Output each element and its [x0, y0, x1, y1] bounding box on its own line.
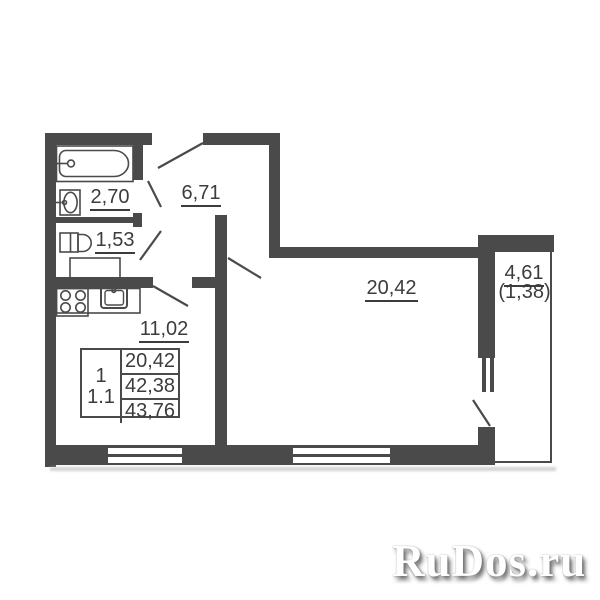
- rudos-watermark: RuDos.ru: [392, 537, 584, 589]
- bathtub-icon: [57, 146, 134, 182]
- toilet-area-label: 1,53: [85, 229, 145, 251]
- apartment-info-table: 1 1.1 20,42 42,38 43,76: [80, 348, 180, 418]
- balcony-reduced-area-label: (1,38): [492, 281, 557, 303]
- flat-type-value: 1: [95, 366, 106, 387]
- entrance-door-swing: [158, 143, 203, 168]
- floor-plan: 2,70 1,53 6,71 11,02 20,42 4,61 (1,38) 1…: [0, 0, 600, 600]
- kitchen-area-label: 11,02: [134, 318, 194, 340]
- bathroom-sink-icon: [56, 190, 80, 215]
- washing-machine-icon: [70, 258, 120, 280]
- flat-unit-value: 1.1: [87, 387, 115, 408]
- kitchen-door-swing: [153, 286, 188, 306]
- kitchen-sink-icon: [101, 284, 127, 309]
- balcony-door-swing: [473, 400, 490, 426]
- bathroom-door-swing: [148, 181, 161, 207]
- living-room-area-label: 20,42: [361, 277, 422, 299]
- flat-type-cell: 1 1.1: [82, 350, 122, 423]
- room-door-swing: [228, 258, 261, 278]
- hallway-area-label: 6,71: [171, 182, 231, 204]
- area-cell: 42,38: [122, 375, 178, 400]
- bathroom-area-label: 2,70: [80, 186, 140, 208]
- stove-icon: [57, 289, 89, 317]
- living-area-cell: 20,42: [122, 350, 178, 375]
- total-area-cell: 43,76: [122, 400, 178, 423]
